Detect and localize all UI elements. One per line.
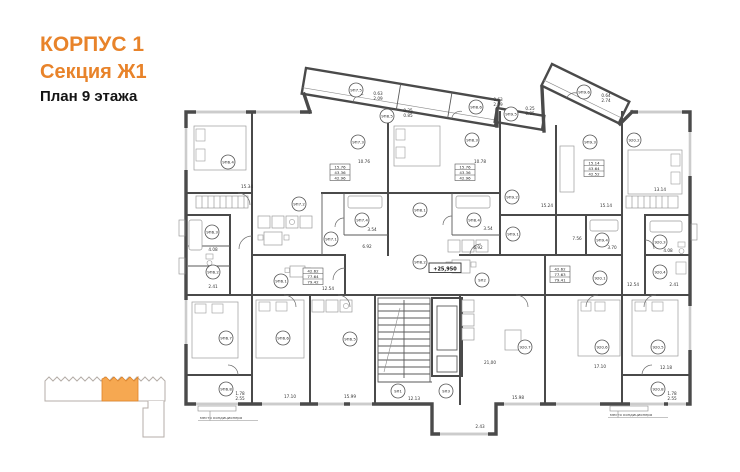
ac-note-left: место кондиционера <box>198 411 258 421</box>
room-label: 920.4 <box>653 265 667 279</box>
room-label-text: 9П7.2 <box>293 201 305 206</box>
dimension-text: 4.08 <box>663 248 673 253</box>
room-label-text: 9П6.8 <box>220 386 232 391</box>
room-label-text: 920.6 <box>596 344 608 349</box>
minimap-highlight <box>102 377 138 401</box>
area-value: 42.52 <box>588 171 600 176</box>
room-label-text: 9П8.1 <box>414 207 426 212</box>
area-value: 42.62 <box>307 268 319 273</box>
area-value: 15.76 <box>459 164 471 169</box>
area-value: 79.42 <box>307 279 319 284</box>
room-label-text: 9П8.4 <box>468 217 480 222</box>
dimension-text: 10.78 <box>474 159 486 164</box>
area-value: 15.76 <box>334 164 346 169</box>
area-table: 42.62 77.63 79.41 <box>550 266 570 283</box>
dimension-text: 17.10 <box>594 364 606 369</box>
dimension-text: 15.14 <box>600 203 612 208</box>
staircase <box>378 298 430 382</box>
room-label: 920.6 <box>595 340 609 354</box>
area-value: 42.62 <box>554 266 566 271</box>
room-label-text: 9П8.5 <box>381 113 393 118</box>
room-label-text: 9П6.6 <box>277 335 289 340</box>
room-label: 9П7.5 <box>349 83 363 97</box>
room-label: 9П7.3 <box>351 135 365 149</box>
dimension-text: 0.85 <box>403 113 413 118</box>
area-table: 15.76 43.36 42.96 <box>330 164 350 181</box>
room-label-text: 920.5 <box>652 344 664 349</box>
room-label-text: 920.1 <box>594 275 606 280</box>
room-label-text: 920.7 <box>519 344 531 349</box>
room-label-text: 9П6.2 <box>207 269 219 274</box>
dimension-text: 2.09 <box>373 96 383 101</box>
area-value: 42.96 <box>459 175 471 180</box>
level-mark: +25,950 <box>429 263 461 273</box>
level-mark-text: +25,950 <box>433 266 457 272</box>
dimension-text: 21,00 <box>484 360 496 365</box>
area-value: 77.63 <box>554 272 566 277</box>
room-label: 920.2 <box>627 133 641 147</box>
room-label-text: 9П7.1 <box>325 236 337 241</box>
dimension-text: 2.55 <box>235 396 245 401</box>
dimension-text: 13.14 <box>654 187 666 192</box>
room-label: 920.7 <box>518 340 532 354</box>
room-label-text: 9П9.5 <box>505 111 517 116</box>
ac-note-text: место кондиционера <box>200 415 242 420</box>
room-label-text: 9П8.6 <box>470 104 482 109</box>
room-label: 9П9.2 <box>505 190 519 204</box>
room-label-text: 9Л3 <box>442 388 450 393</box>
balcony-wing-middle <box>495 108 545 130</box>
room-label: 9П8.2 <box>413 255 427 269</box>
room-label: 9П6.1 <box>274 274 288 288</box>
dimension-text: 12.54 <box>322 286 334 291</box>
balcony-wing-left <box>302 68 500 126</box>
room-label: 9П6.2 <box>206 265 220 279</box>
dimension-text: 15.99 <box>344 394 356 399</box>
room-label-text: 9Л2 <box>478 277 486 282</box>
room-label-text: 9П9.6 <box>578 89 590 94</box>
dimension-text: 3.54 <box>367 227 377 232</box>
dimension-text: 2.43 <box>475 424 485 429</box>
room-label: 9П7.4 <box>355 213 369 227</box>
room-label: 9П8.4 <box>467 213 481 227</box>
area-value: 43.36 <box>459 170 471 175</box>
minimap <box>45 377 165 437</box>
room-label-text: 920.4 <box>654 269 666 274</box>
dimension-text: 3.70 <box>607 245 617 250</box>
room-label: 9П9.6 <box>577 85 591 99</box>
room-label-text: 920.2 <box>628 137 640 142</box>
room-label: 920.3 <box>653 235 667 249</box>
room-label: 9П8.6 <box>469 100 483 114</box>
area-value: 77.64 <box>307 274 319 279</box>
dimension-text: 0.85 <box>525 111 535 116</box>
dimension-text: 15.34 <box>241 184 253 189</box>
ac-note-text: место кондиционера <box>610 412 652 417</box>
dimension-text: 2.41 <box>208 284 218 289</box>
room-label: 9П6.7 <box>219 331 233 345</box>
room-label-text: 920.8 <box>652 386 664 391</box>
dimension-text: 12.18 <box>660 365 672 370</box>
room-label-text: 9П9.1 <box>507 231 519 236</box>
dimension-text: 2.74 <box>601 98 611 103</box>
area-value: 79.41 <box>554 277 566 282</box>
area-value: 42.96 <box>334 175 346 180</box>
dimension-text: 3.54 <box>483 226 493 231</box>
room-label-text: 9П6.1 <box>275 278 287 283</box>
dimension-text: 6.92 <box>473 245 483 250</box>
room-label: 920.8 <box>651 382 665 396</box>
floor-plan-page: КОРПУС 1 Секция Ж1 План 9 этажа <box>0 0 740 472</box>
dimension-text: 2.41 <box>669 282 679 287</box>
dimension-text: 2.55 <box>667 396 677 401</box>
area-value: 15.14 <box>588 160 600 165</box>
dimension-text: 15.98 <box>512 395 524 400</box>
room-label: 9Л1 <box>391 384 405 398</box>
area-value: 43.64 <box>588 166 600 171</box>
dimension-text: 2.09 <box>493 102 503 107</box>
room-label-text: 9П9.2 <box>506 194 518 199</box>
minimap-wing <box>143 401 164 437</box>
room-label-text: 9П8.3 <box>466 137 478 142</box>
dimension-text: 17.10 <box>284 394 296 399</box>
room-label: 9П8.1 <box>413 203 427 217</box>
room-label: 9П9.1 <box>506 227 520 241</box>
room-label-text: 9П7.5 <box>350 87 362 92</box>
room-label-text: 9Л1 <box>394 388 402 393</box>
room-label: 9П6.6 <box>276 331 290 345</box>
dimension-text: 6.92 <box>362 244 372 249</box>
room-label-text: 9П6.3 <box>206 229 218 234</box>
room-label: 9П6.3 <box>205 225 219 239</box>
room-label: 920.5 <box>651 340 665 354</box>
room-label-text: 9П6.5 <box>344 336 356 341</box>
room-label: 9П8.5 <box>380 109 394 123</box>
dimension-text: 15.24 <box>541 203 553 208</box>
room-label: 9П6.8 <box>219 382 233 396</box>
room-label-text: 9П7.4 <box>356 217 368 222</box>
room-label-text: 920.3 <box>654 239 666 244</box>
ac-note-right: место кондиционера <box>608 411 668 418</box>
room-label: 9П8.3 <box>465 133 479 147</box>
room-label: 9Л2 <box>475 273 489 287</box>
floorplan-svg: 9П6.4 9П6.3 9П6.2 9П6.1 9П6.7 9П6.6 9П6.… <box>0 0 740 472</box>
room-label: 9П7.1 <box>324 232 338 246</box>
room-label: 9П7.2 <box>292 197 306 211</box>
dimension-text: 4.08 <box>208 247 218 252</box>
dimension-text: 12.54 <box>627 282 639 287</box>
room-label: 9П6.5 <box>343 332 357 346</box>
dimension-text: 10.76 <box>358 159 370 164</box>
room-label-text: 9П6.7 <box>220 335 232 340</box>
area-value: 43.36 <box>334 170 346 175</box>
room-label: 9Л3 <box>439 384 453 398</box>
room-label: 9П9.5 <box>504 107 518 121</box>
room-label-text: 9П9.3 <box>584 139 596 144</box>
elevator-shaft <box>432 298 462 376</box>
room-label: 9П9.3 <box>583 135 597 149</box>
area-table: 42.62 77.64 79.42 <box>303 268 323 285</box>
room-label-text: 9П7.3 <box>352 139 364 144</box>
area-table: 15.76 43.36 42.96 <box>455 164 475 181</box>
room-label-text: 9П9.4 <box>596 237 608 242</box>
room-label-text: 9П6.4 <box>222 159 234 164</box>
room-label: 9П6.4 <box>221 155 235 169</box>
dimension-text: 7.56 <box>572 236 582 241</box>
dimension-text: 12.13 <box>408 396 420 401</box>
area-table: 15.14 43.64 42.52 <box>584 160 604 177</box>
room-label-text: 9П8.2 <box>414 259 426 264</box>
room-label: 920.1 <box>593 271 607 285</box>
